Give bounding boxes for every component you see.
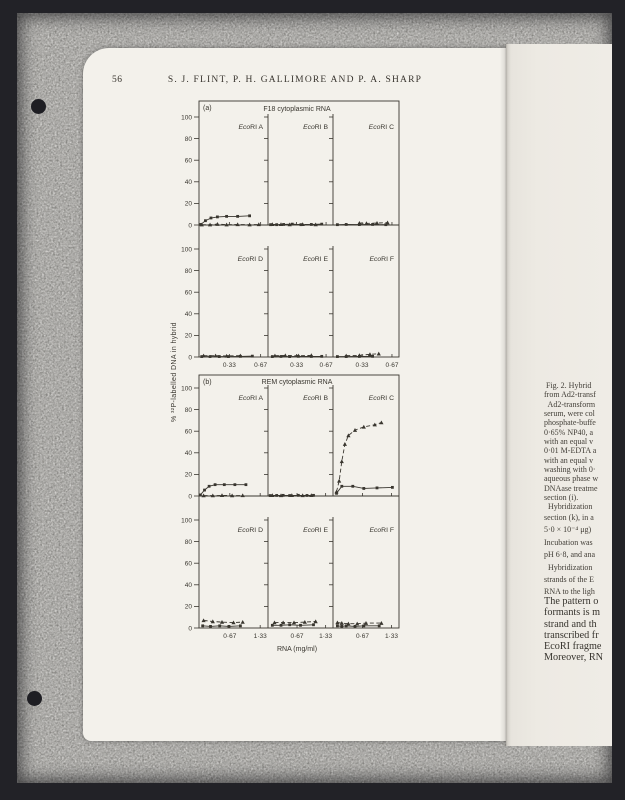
- page-fold-crease: [500, 44, 511, 746]
- punch-hole-top: [31, 99, 46, 114]
- scan-top-edge: [0, 0, 625, 13]
- running-header: S. J. FLINT, P. H. GALLIMORE AND P. A. S…: [153, 75, 437, 85]
- scan-bottom-edge: [0, 783, 625, 800]
- punch-hole-bottom: [27, 691, 42, 706]
- journal-page: [83, 48, 506, 741]
- page-number: 56: [112, 75, 123, 85]
- scanned-journal-page: 56 S. J. FLINT, P. H. GALLIMORE AND P. A…: [0, 0, 625, 800]
- scan-right-edge: [612, 0, 625, 800]
- scan-left-edge: [0, 0, 17, 800]
